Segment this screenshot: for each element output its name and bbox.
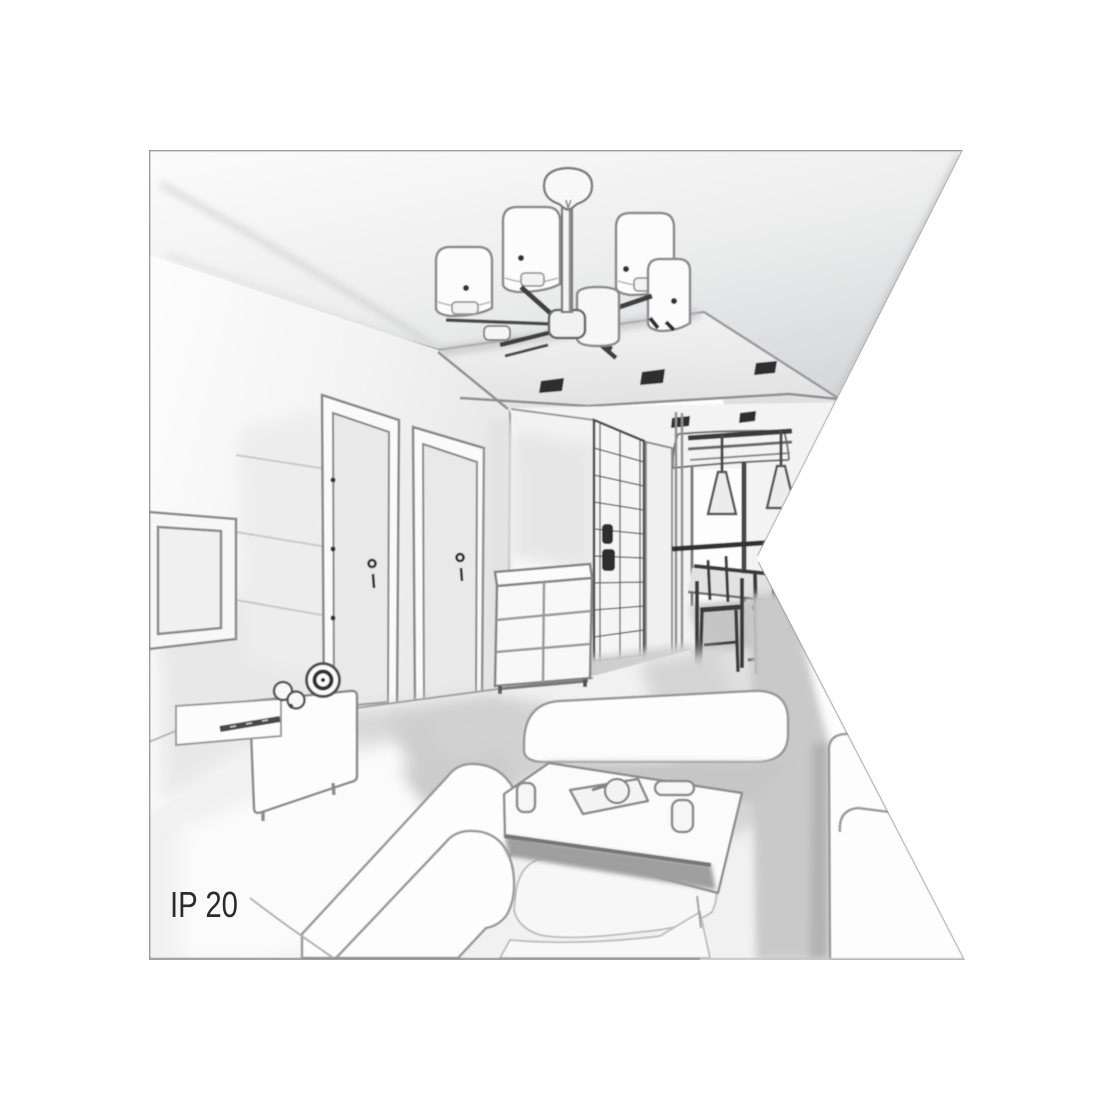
svg-text:IP 20: IP 20 [170, 884, 238, 925]
